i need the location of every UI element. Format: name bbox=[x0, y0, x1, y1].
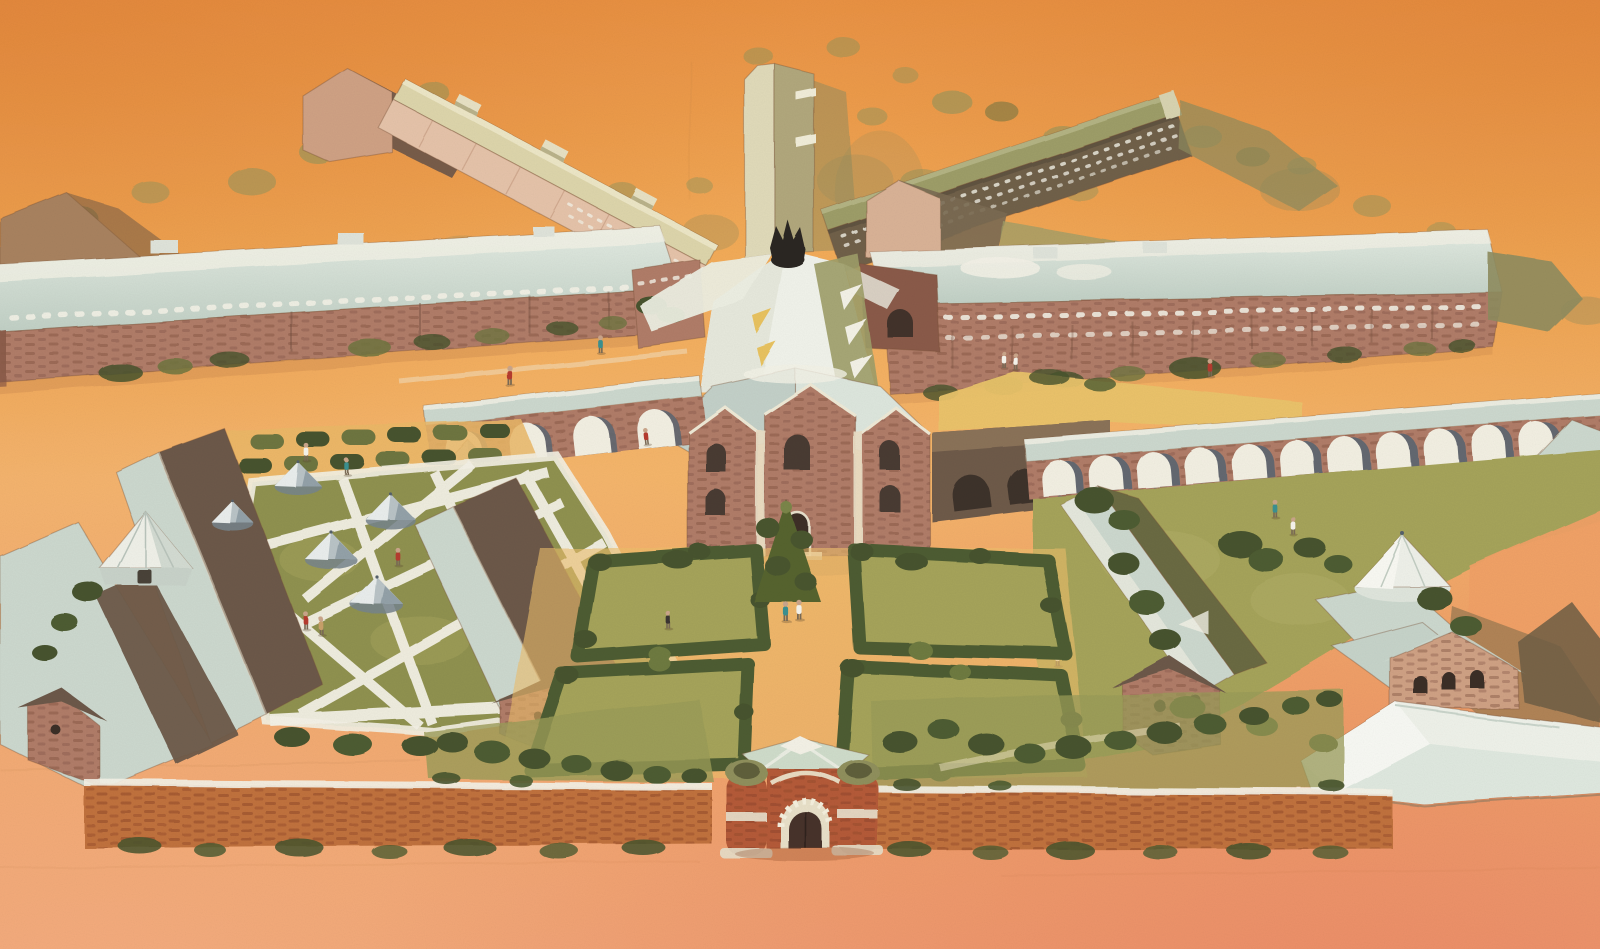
watercolor-illustration: const data = JSON.parse(document.getElem… bbox=[0, 0, 1600, 949]
paper-grain-texture bbox=[0, 0, 1600, 949]
